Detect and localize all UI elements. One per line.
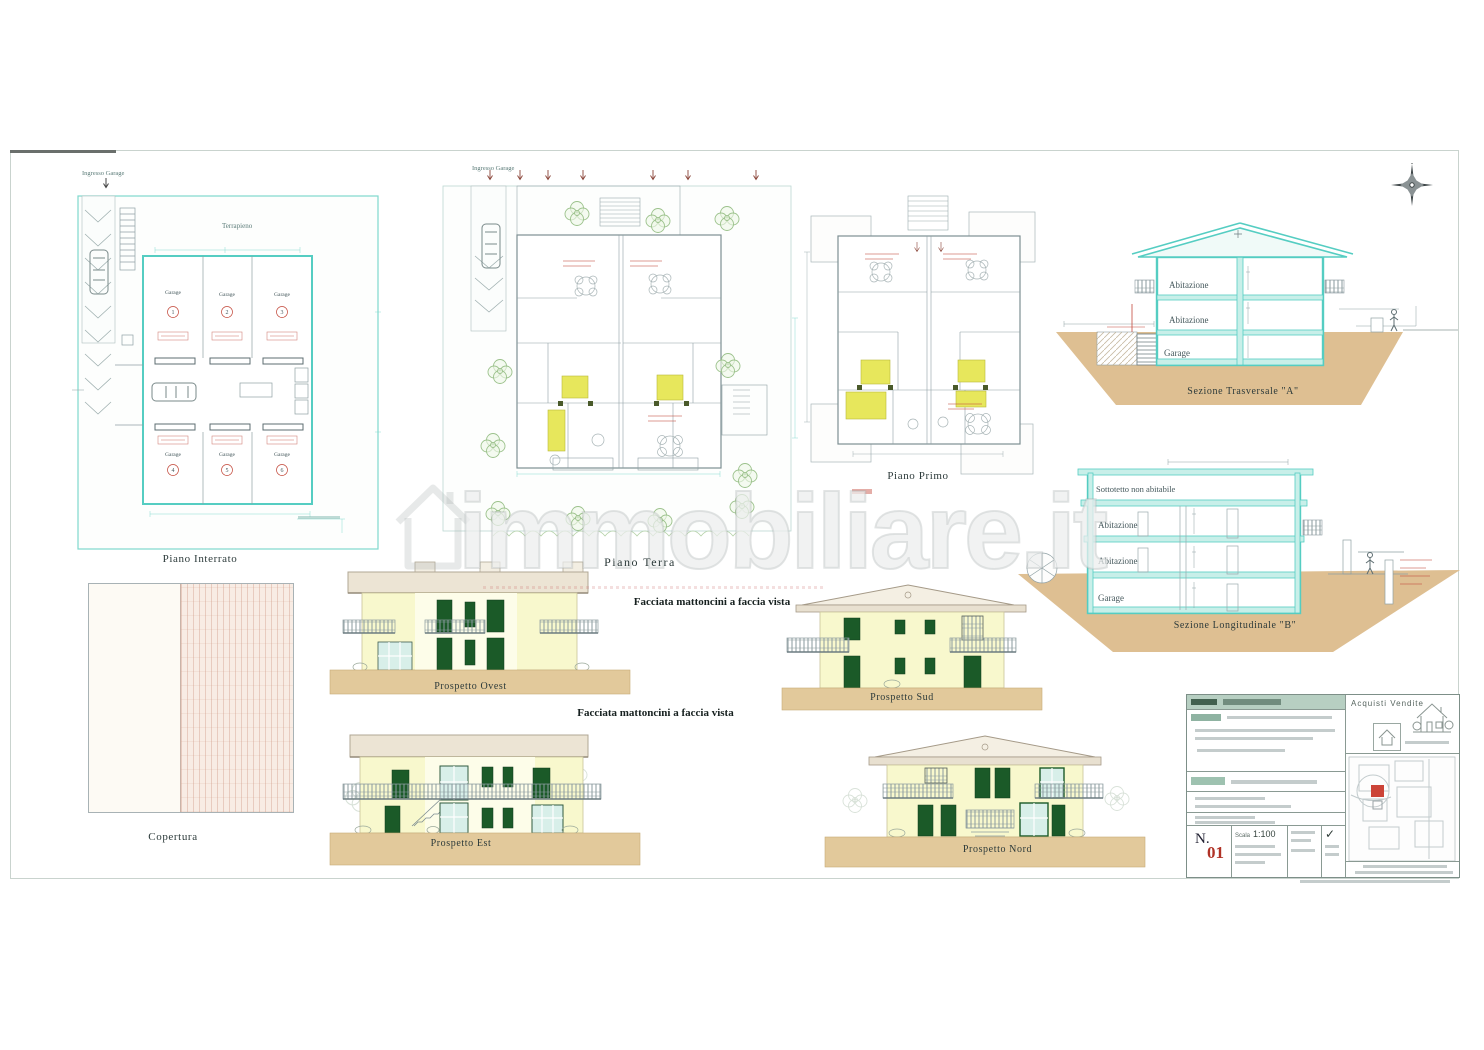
svg-text:Garage: Garage bbox=[219, 452, 235, 458]
svg-text:Garage: Garage bbox=[1098, 593, 1124, 603]
plan-title-interrato: Piano Interrato bbox=[110, 553, 290, 565]
svg-text:Garage: Garage bbox=[165, 290, 181, 296]
svg-text:3: 3 bbox=[281, 310, 284, 316]
elevation-sud bbox=[782, 578, 1042, 710]
location-map bbox=[1349, 757, 1455, 861]
elevation-title-sud: Prospetto Sud bbox=[827, 692, 977, 703]
svg-text:4: 4 bbox=[172, 468, 175, 474]
svg-text:Garage: Garage bbox=[219, 292, 235, 298]
plan-copertura bbox=[88, 583, 294, 813]
label-ingresso-garage-1: Ingresso Garage bbox=[82, 170, 124, 177]
checkmark-icon: ✓ bbox=[1325, 827, 1335, 841]
north-compass-icon bbox=[1390, 163, 1434, 207]
plan-title-primo: Piano Primo bbox=[843, 470, 993, 482]
elevation-title-nord: Prospetto Nord bbox=[920, 844, 1075, 855]
drawing-sheet: Garage Garage Garage Garage Garage Garag… bbox=[0, 0, 1484, 1050]
sheet-border-top-mark bbox=[10, 150, 116, 153]
svg-text:Garage: Garage bbox=[274, 452, 290, 458]
footer-text-line bbox=[1300, 880, 1450, 883]
elevation-title-ovest: Prospetto Ovest bbox=[398, 681, 543, 692]
entry-arrow-icon bbox=[100, 178, 112, 192]
stamp-box bbox=[1373, 723, 1401, 751]
map-highlight-parcel bbox=[1371, 785, 1384, 797]
title-block: N. 01 Scala 1:100 ✓ Acquisti Vendite bbox=[1186, 694, 1460, 878]
svg-text:Garage: Garage bbox=[165, 452, 181, 458]
plan-title-copertura: Copertura bbox=[117, 831, 229, 843]
plan-title-terra: Piano Terra bbox=[555, 555, 725, 570]
scale-label: Scala bbox=[1235, 833, 1250, 839]
plan-piano-terra bbox=[438, 158, 810, 560]
svg-text:Abitazione: Abitazione bbox=[1169, 280, 1209, 290]
facade-note-1: Facciata mattoncini a faccia vista bbox=[612, 596, 812, 608]
svg-text:Garage: Garage bbox=[274, 292, 290, 298]
svg-text:Sottotetto non abitabile: Sottotetto non abitabile bbox=[1096, 484, 1176, 494]
label-terrapieno: Terrapieno bbox=[222, 222, 252, 230]
svg-text:6: 6 bbox=[281, 468, 284, 474]
section-title-trasversale: Sezione Trasversale "A" bbox=[1148, 386, 1338, 397]
sheet-number-value: 01 bbox=[1207, 843, 1224, 863]
section-title-longitudinale: Sezione Longitudinale "B" bbox=[1130, 620, 1340, 631]
person-icon bbox=[1366, 553, 1374, 575]
label-ingresso-garage-2: Ingresso Garage bbox=[472, 165, 514, 172]
logo-house-icon bbox=[1409, 698, 1455, 736]
plan-piano-primo bbox=[793, 192, 1067, 480]
svg-text:Abitazione: Abitazione bbox=[1169, 315, 1209, 325]
scale-value: 1:100 bbox=[1253, 829, 1276, 839]
field-chip-agency bbox=[1191, 777, 1225, 785]
plan-primo-red-note bbox=[852, 489, 872, 494]
roof-tiled-half bbox=[180, 584, 293, 812]
elevation-ovest bbox=[330, 560, 630, 700]
person-icon bbox=[1390, 310, 1398, 332]
svg-text:Abitazione: Abitazione bbox=[1098, 520, 1138, 530]
header-chip bbox=[1191, 699, 1217, 705]
svg-text:1: 1 bbox=[172, 310, 175, 316]
elevation-title-est: Prospetto Est bbox=[387, 838, 535, 849]
facade-note-2: Facciata mattoncini a faccia vista bbox=[558, 707, 753, 719]
section-trasversale: Abitazione Abitazione Garage bbox=[1056, 206, 1460, 406]
svg-text:2: 2 bbox=[226, 310, 229, 316]
field-chip-oggetto bbox=[1191, 714, 1221, 721]
svg-text:Garage: Garage bbox=[1164, 348, 1190, 358]
svg-text:5: 5 bbox=[226, 468, 229, 474]
svg-text:Abitazione: Abitazione bbox=[1098, 556, 1138, 566]
